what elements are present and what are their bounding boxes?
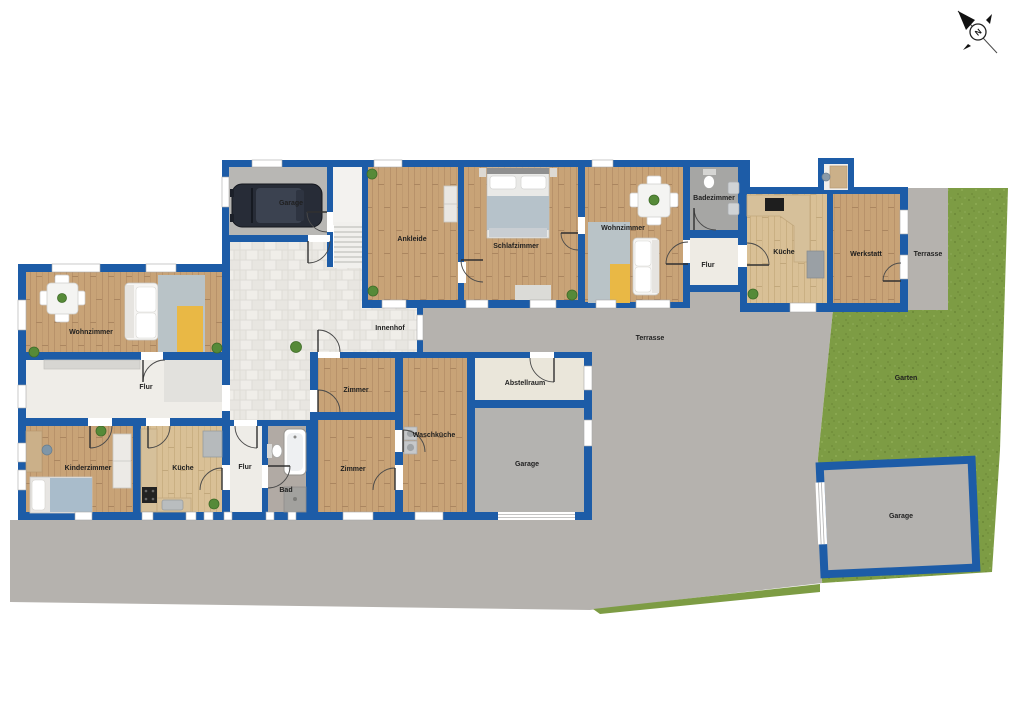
label-flur-left: Flur (139, 384, 152, 391)
label-kueche-top: Küche (773, 249, 795, 256)
kids-bed-icon (30, 477, 92, 513)
room-garage-middle (475, 408, 584, 512)
label-zimmer-upper: Zimmer (343, 387, 369, 394)
bed-icon (479, 168, 557, 238)
stair-hall-floor (333, 167, 362, 225)
compass-icon: N (958, 11, 997, 53)
stairs-icon (334, 222, 362, 268)
label-garage-top: Garage (279, 200, 303, 207)
bath-sink-icon (728, 182, 739, 194)
toilet-small-icon (267, 444, 282, 458)
label-wohnzimmer-left: Wohnzimmer (69, 329, 113, 336)
label-waschkueche: Waschküche (413, 432, 456, 439)
garage-door-opening (498, 512, 575, 520)
label-garage-middle: Garage (515, 461, 539, 468)
room-zimmer-upper (318, 358, 395, 412)
label-zimmer-lower: Zimmer (340, 466, 366, 473)
toilet-icon (703, 169, 716, 189)
label-terrasse-main: Terrasse (636, 335, 665, 342)
room-abstellraum (475, 358, 584, 400)
label-flur-small: Flur (238, 464, 251, 471)
label-werkstatt: Werkstatt (850, 251, 882, 258)
wall-stub (222, 242, 230, 268)
entry-zone (164, 360, 222, 402)
label-kueche-left: Küche (172, 465, 194, 472)
living-left-rug-accent (177, 306, 203, 352)
label-abstellraum: Abstellraum (505, 380, 545, 387)
car-icon (230, 184, 322, 227)
bathtub-icon (284, 429, 306, 475)
flur-sideboard (44, 360, 140, 369)
sofa-top-icon (633, 238, 659, 295)
label-badezimmer: Badezimmer (693, 195, 735, 202)
label-garten: Garten (895, 375, 918, 382)
room-werkstatt (833, 194, 900, 303)
label-terrasse-side: Terrasse (914, 251, 943, 258)
label-flur-top: Flur (701, 262, 714, 269)
sofa-left-icon (125, 283, 158, 340)
label-ankleide: Ankleide (397, 236, 426, 243)
living-top-rug-accent (610, 264, 630, 303)
label-bad: Bad (279, 487, 292, 494)
floor-plan: Garage Ankleide Schlafzimmer Wohnzimmer … (0, 0, 1024, 725)
label-garage-outdoor: Garage (889, 513, 913, 520)
floor-plan-page: Garage Ankleide Schlafzimmer Wohnzimmer … (0, 0, 1024, 725)
bath-sink2-icon (728, 203, 739, 215)
label-innenhof: Innenhof (375, 325, 405, 332)
bedroom-rug (515, 285, 551, 300)
label-schlafzimmer: Schlafzimmer (493, 243, 539, 250)
label-kinderzimmer: Kinderzimmer (65, 465, 112, 472)
label-wohnzimmer-top: Wohnzimmer (601, 225, 645, 232)
